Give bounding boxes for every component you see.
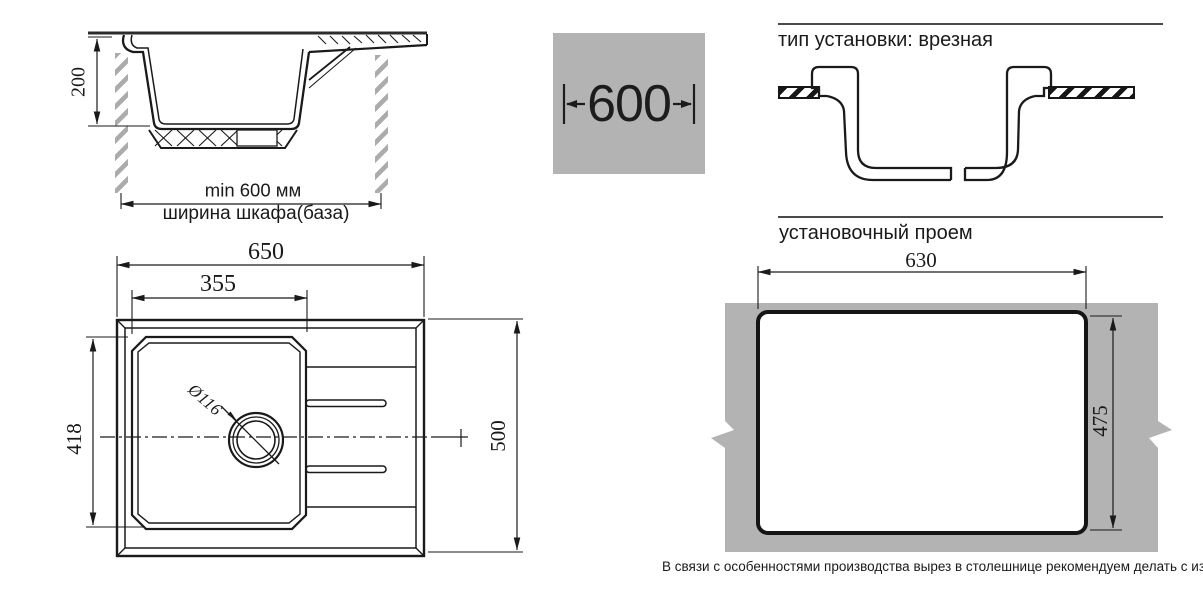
slab-hatch (318, 35, 421, 44)
overall-width-label: 650 (248, 239, 284, 267)
cabinet-width-caption: ширина шкафа(база) (163, 203, 350, 225)
depth-dimension-lines (88, 37, 150, 126)
line-art (0, 0, 1203, 606)
opening-width-dimension-lines (758, 266, 1086, 309)
bowl-width-label: 355 (200, 271, 236, 299)
opening-title: установочный проем (779, 222, 973, 245)
drain-leader-arrow (228, 412, 238, 422)
opening-view-drawing (711, 217, 1172, 552)
bowl-height-label: 418 (62, 423, 86, 455)
bowl-height-dimension-lines (86, 337, 144, 527)
depth-dimension-label: 200 (68, 67, 91, 97)
production-footnote: В связи с особенностями производства выр… (662, 559, 1203, 575)
installation-type-title: тип установки: врезная (778, 29, 993, 52)
cutout-rect (758, 312, 1086, 533)
opening-height-label: 475 (1088, 405, 1112, 437)
opening-width-label: 630 (905, 248, 937, 272)
overall-depth-label: 500 (486, 420, 510, 452)
sink-installation-drawing-sheet: 600 (0, 0, 1203, 606)
top-view-drawing (86, 256, 523, 556)
min-width-label: min 600 мм (205, 179, 301, 200)
